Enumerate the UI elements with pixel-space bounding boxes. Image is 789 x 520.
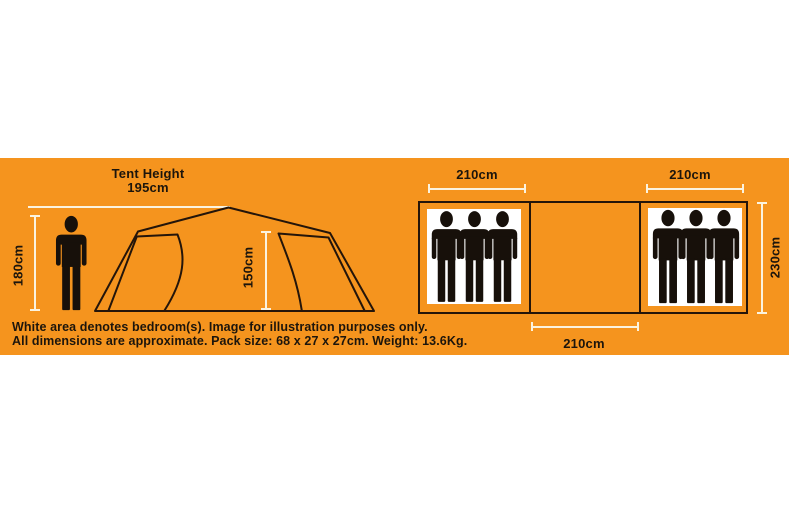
middle-width-end-cap (637, 322, 639, 331)
caption-line2: All dimensions are approximate. Pack siz… (12, 334, 467, 348)
depth-dimension-line (761, 202, 763, 314)
right-bedroom-width-label: 210cm (660, 167, 720, 182)
left-width-end-cap (524, 184, 526, 193)
left-bedroom-width-label: 210cm (447, 167, 507, 182)
living-area (529, 201, 641, 314)
middle-width-dimension-line (531, 326, 639, 328)
depth-bottom-cap (757, 312, 767, 314)
depth-label: 230cm (768, 228, 783, 288)
caption-text: White area denotes bedroom(s). Image for… (12, 320, 467, 348)
tent-dimensions-image: Tent Height 195cm 180cm 150cm 210cm 210c… (0, 0, 789, 520)
right-width-dimension-line (646, 188, 744, 190)
person-icon (705, 209, 743, 304)
person-icon (484, 210, 521, 303)
floor-plan-diagram: 210cm 210cm 210cm 230cm (0, 0, 789, 520)
right-width-end-cap (742, 184, 744, 193)
middle-width-label: 210cm (554, 336, 614, 351)
left-width-dimension-line (428, 188, 526, 190)
caption-line1: White area denotes bedroom(s). Image for… (12, 320, 467, 334)
